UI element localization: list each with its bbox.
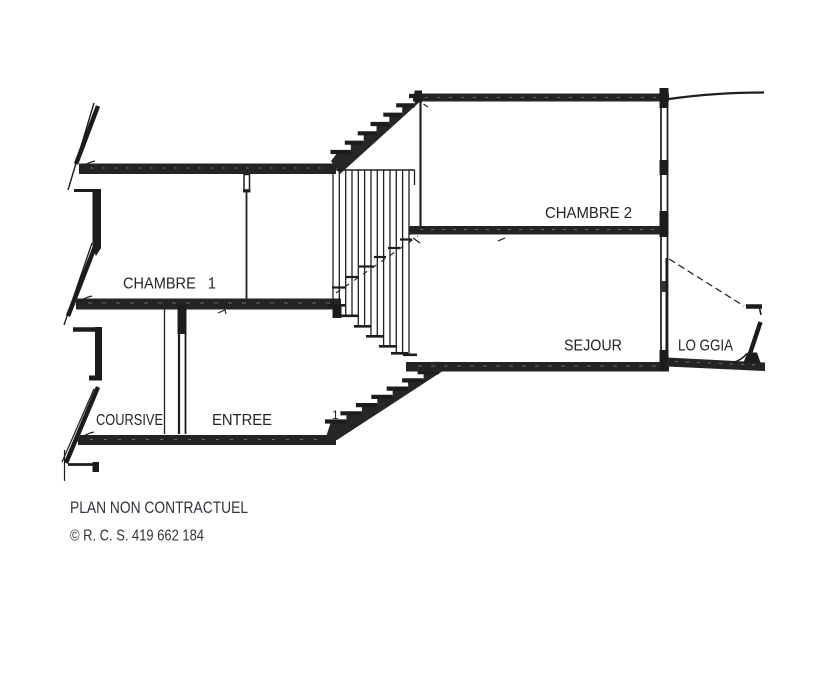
svg-text:SEJOUR: SEJOUR (564, 338, 622, 355)
svg-text:LO GGIA: LO GGIA (678, 338, 733, 355)
svg-text:CHAMBRE 2: CHAMBRE 2 (545, 205, 632, 222)
svg-text:CHAMBRE 1: CHAMBRE 1 (123, 276, 216, 293)
svg-text:© R. C. S. 419 662 184: © R. C. S. 419 662 184 (70, 528, 204, 545)
svg-text:ENTREE: ENTREE (212, 412, 272, 429)
svg-text:PLAN NON CONTRACTUEL: PLAN NON CONTRACTUEL (70, 498, 248, 517)
svg-text:COURSIVE: COURSIVE (96, 412, 163, 429)
